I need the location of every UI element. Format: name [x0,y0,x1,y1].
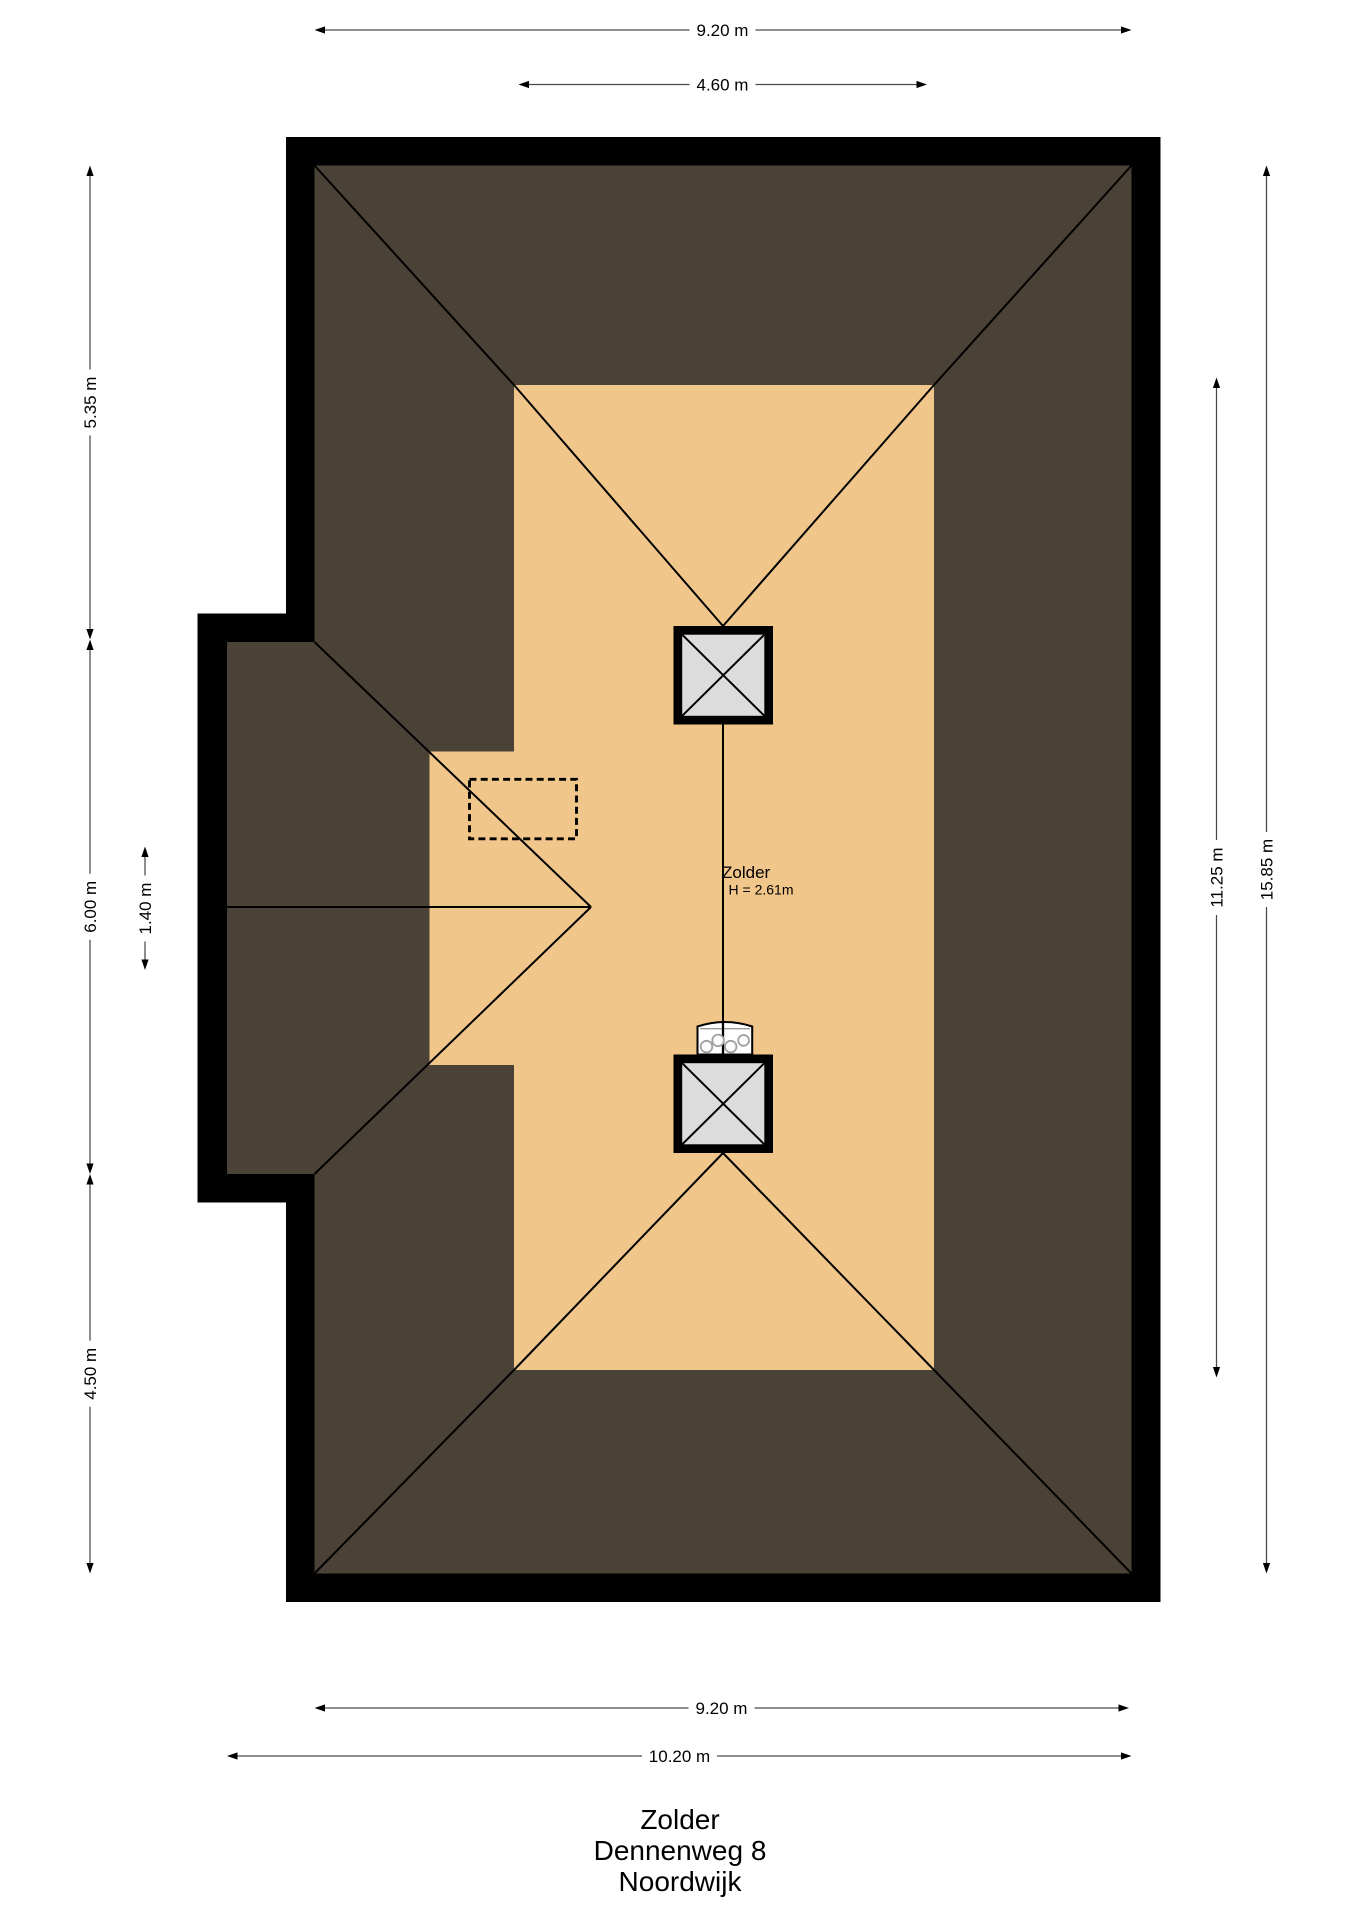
svg-text:4.50 m: 4.50 m [81,1348,100,1400]
svg-text:5.35 m: 5.35 m [81,377,100,429]
svg-text:9.20 m: 9.20 m [697,21,749,40]
svg-text:10.20 m: 10.20 m [649,1747,710,1766]
svg-text:1.40 m: 1.40 m [136,883,155,935]
svg-text:Noordwijk: Noordwijk [619,1866,743,1897]
svg-text:4.60 m: 4.60 m [697,76,749,95]
svg-text:H = 2.61m: H = 2.61m [729,882,794,898]
svg-text:9.20 m: 9.20 m [696,1699,748,1718]
svg-text:Zolder: Zolder [722,863,771,882]
svg-text:11.25 m: 11.25 m [1208,847,1227,907]
svg-text:Dennenweg 8: Dennenweg 8 [594,1835,767,1866]
svg-text:Zolder: Zolder [640,1804,719,1835]
svg-text:15.85 m: 15.85 m [1258,839,1277,900]
svg-text:6.00 m: 6.00 m [81,881,100,933]
